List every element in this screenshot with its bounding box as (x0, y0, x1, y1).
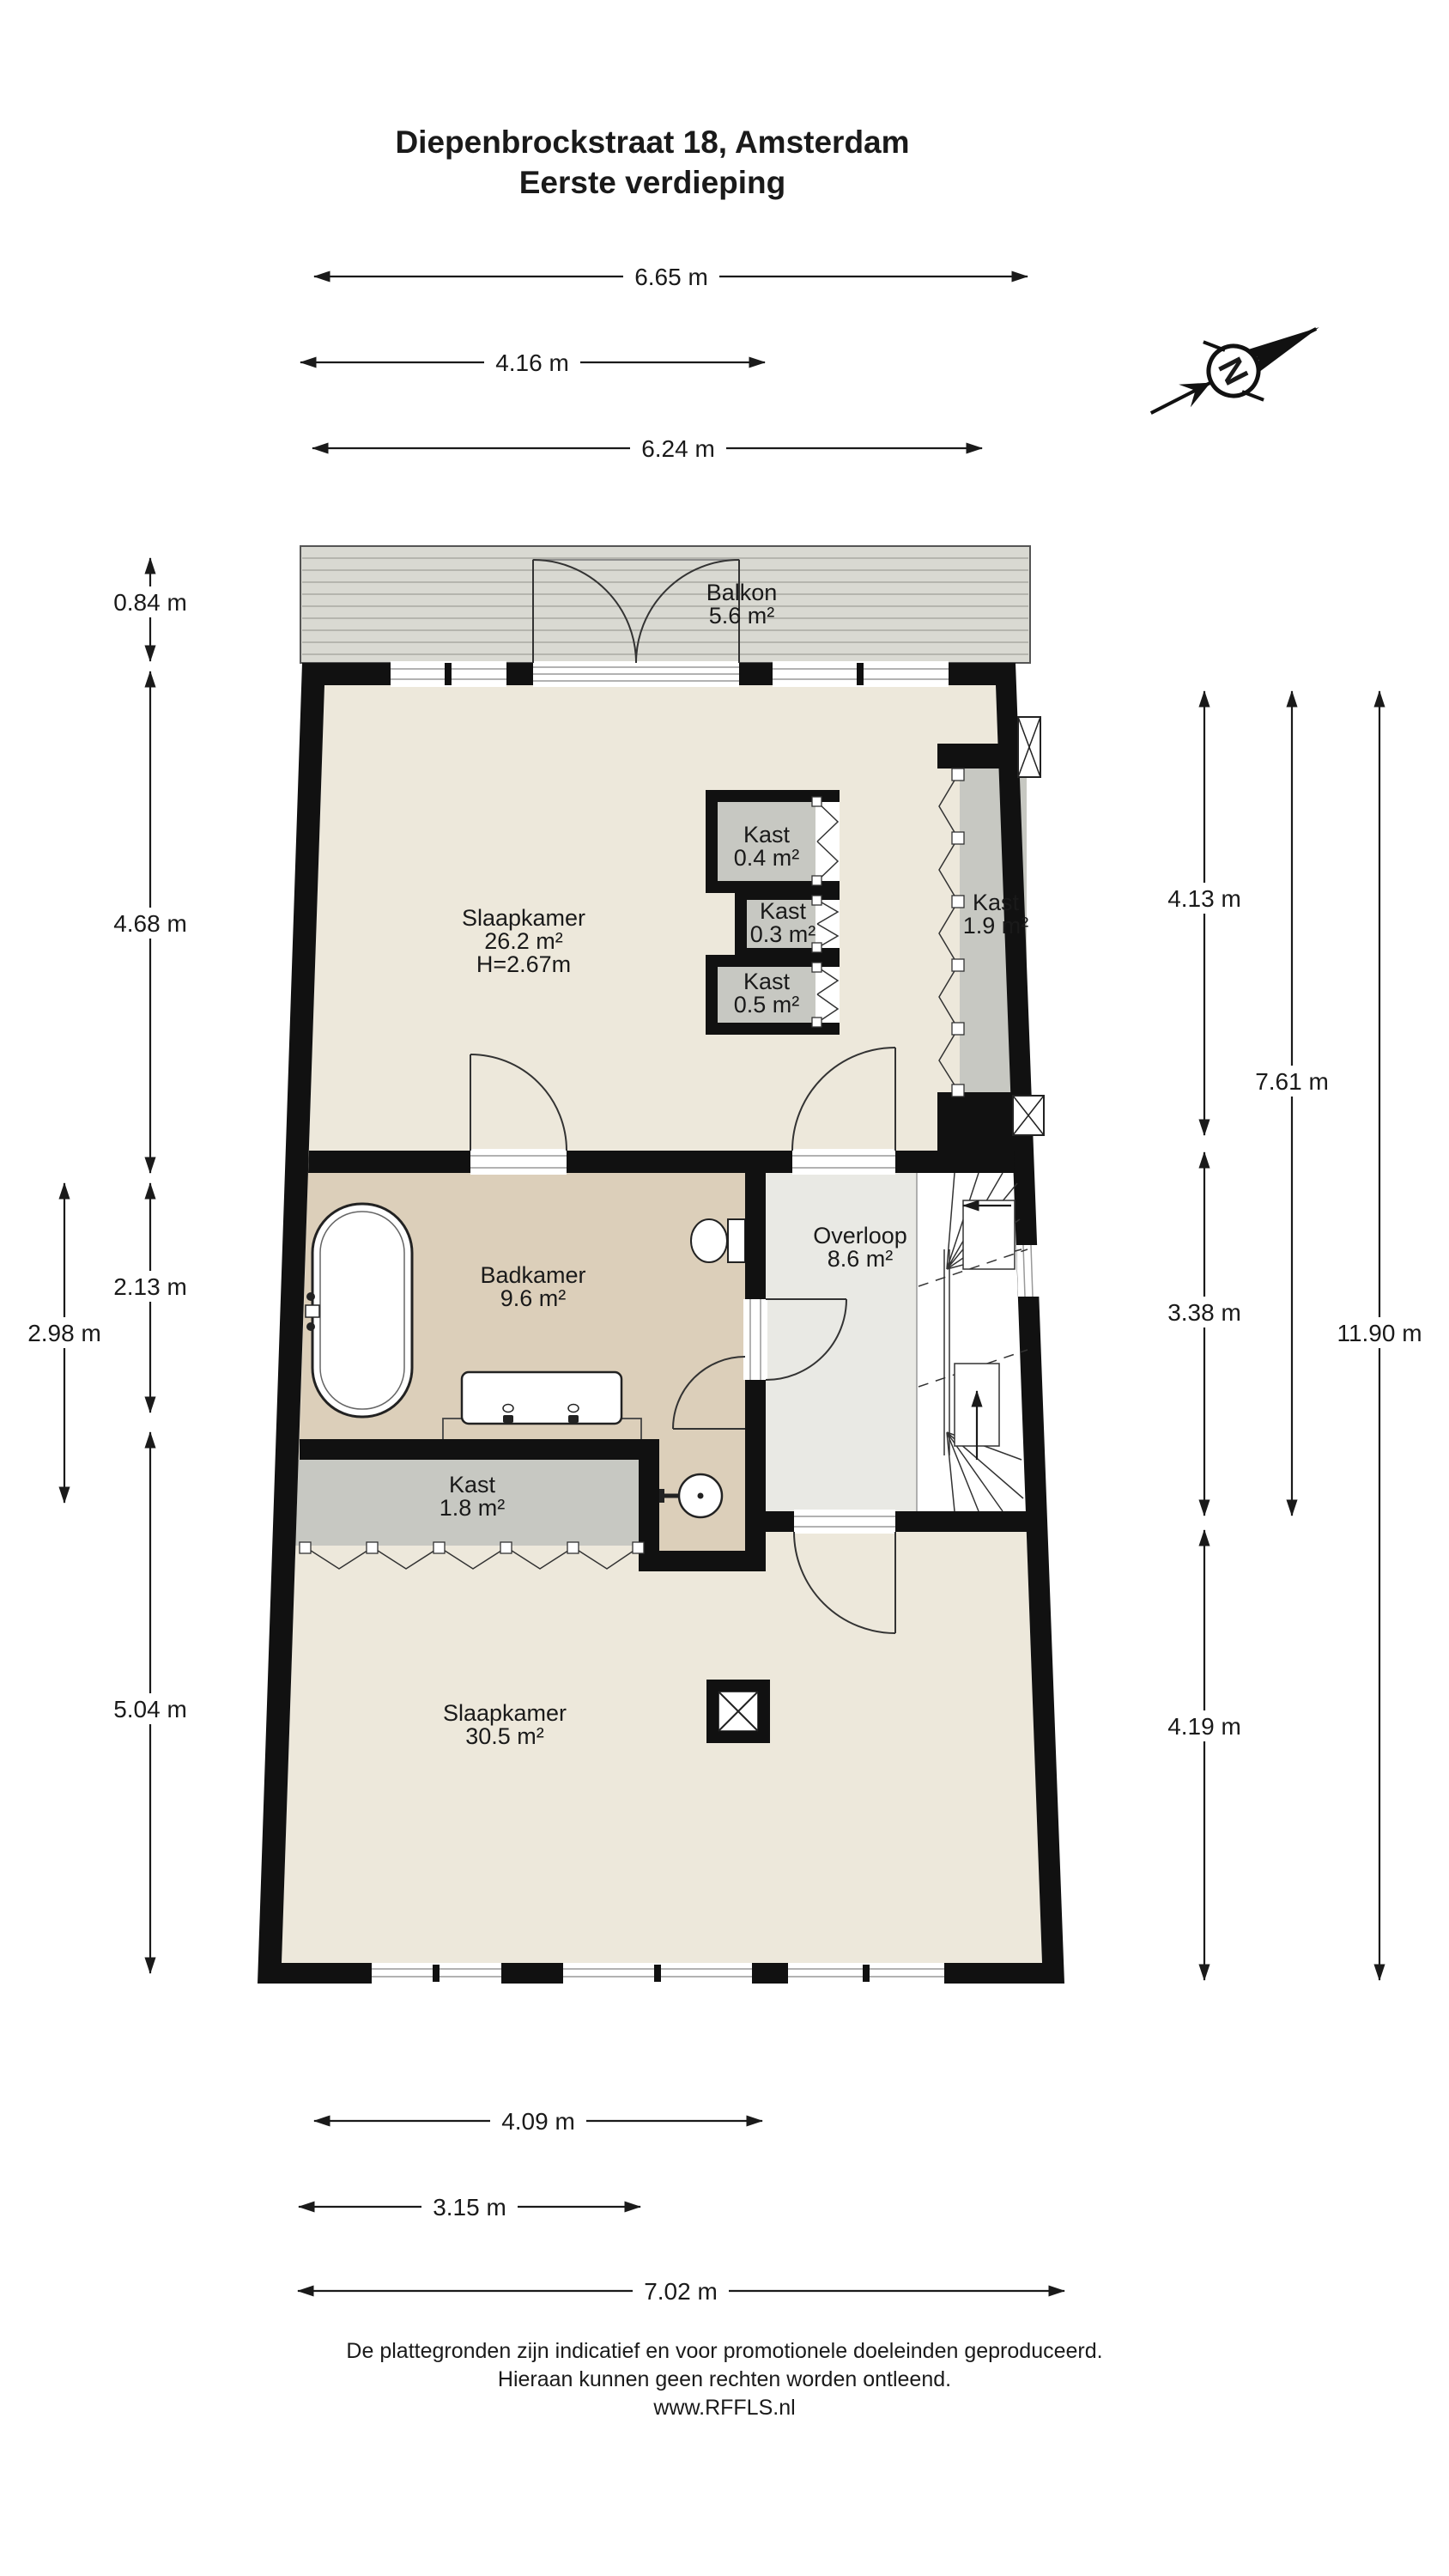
door-opening (743, 1299, 767, 1380)
dim-label: 11.90 m (1337, 1320, 1422, 1346)
window-mullion (857, 663, 864, 685)
bathtub-tap-handle (306, 1322, 315, 1331)
dim-label: 4.68 m (113, 910, 187, 937)
room-area-kast19: 1.9 m² (963, 913, 1029, 939)
dim-label: 2.13 m (113, 1273, 187, 1300)
floorplan-page: Diepenbrockstraat 18, Amsterdam Eerste v… (0, 0, 1449, 2576)
door-opening (792, 1149, 895, 1175)
room-label-slaapkamer1: Slaapkamer (462, 905, 585, 931)
closet-05-door-zone (815, 967, 840, 1023)
faucet-icon (568, 1415, 579, 1423)
room-label-balkon: Balkon (706, 580, 778, 605)
footer-line2: Hieraan kunnen geen rechten worden ontle… (498, 2367, 951, 2391)
window (1016, 1245, 1040, 1297)
window-mullion (863, 1965, 870, 1982)
floorplan-drawing: Diepenbrockstraat 18, Amsterdam Eerste v… (0, 0, 1449, 2576)
room-area-badkamer: 9.6 m² (500, 1285, 567, 1311)
room-label-slaapkamer2: Slaapkamer (443, 1700, 567, 1726)
room-area-kast05: 0.5 m² (734, 992, 800, 1018)
room-area-balkon: 5.6 m² (709, 603, 775, 629)
window-mullion (445, 663, 452, 685)
room-area-slaapkamer2: 30.5 m² (465, 1723, 544, 1749)
dim-label: 7.61 m (1255, 1068, 1329, 1095)
closet-04-door-zone (815, 802, 840, 881)
bathtub-spout (306, 1305, 319, 1317)
dim-label: 6.65 m (634, 264, 708, 290)
door-opening (794, 1510, 895, 1534)
dim-label: 2.98 m (27, 1320, 101, 1346)
dim-label: 3.15 m (433, 2194, 506, 2221)
footer-website: www.RFFLS.nl (652, 2396, 795, 2420)
room-area-slaapkamer1: 26.2 m² (484, 928, 563, 954)
dim-label: 5.04 m (113, 1696, 187, 1722)
window-mullion (433, 1965, 440, 1982)
dim-label: 4.19 m (1167, 1713, 1241, 1740)
shower-head-center (698, 1493, 704, 1499)
room-label-kast05: Kast (743, 969, 791, 994)
room-label-kast18: Kast (449, 1472, 496, 1498)
stair-landing-upper (963, 1200, 1015, 1269)
dim-label: 6.24 m (641, 435, 715, 462)
dim-label: 4.09 m (501, 2108, 575, 2135)
door-opening (470, 1149, 567, 1175)
title-address: Diepenbrockstraat 18, Amsterdam (395, 125, 909, 160)
room-label-overloop: Overloop (813, 1223, 907, 1249)
room-area-kast03: 0.3 m² (750, 921, 816, 947)
faucet-icon (503, 1415, 513, 1423)
dim-label: 0.84 m (113, 589, 187, 616)
room-area-kast04: 0.4 m² (734, 845, 800, 871)
bathtub-tap-handle (306, 1292, 315, 1301)
window-mullion (654, 1965, 661, 1982)
toilet-bowl (691, 1219, 727, 1262)
closet-03-door-zone (815, 900, 840, 948)
dim-label: 4.13 m (1167, 885, 1241, 912)
bathtub (312, 1204, 412, 1417)
dim-label: 7.02 m (644, 2278, 718, 2305)
room-height-slaapkamer1: H=2.67m (476, 951, 571, 977)
footer-line1: De plattegronden zijn indicatief en voor… (346, 2339, 1102, 2363)
room-label-kast04: Kast (743, 822, 791, 848)
room-label-badkamer: Badkamer (480, 1262, 585, 1288)
dim-label: 3.38 m (1167, 1299, 1241, 1326)
toilet-tank (728, 1219, 745, 1262)
room-area-kast18: 1.8 m² (440, 1495, 506, 1521)
balcony-deck (300, 546, 1030, 663)
vanity-double-sink (462, 1372, 621, 1424)
dim-label: 4.16 m (495, 349, 569, 376)
room-label-kast19: Kast (973, 890, 1020, 915)
title-floor: Eerste verdieping (519, 165, 786, 200)
room-label-kast03: Kast (760, 898, 807, 924)
room-area-overloop: 8.6 m² (828, 1246, 894, 1272)
balcony (300, 546, 1030, 663)
